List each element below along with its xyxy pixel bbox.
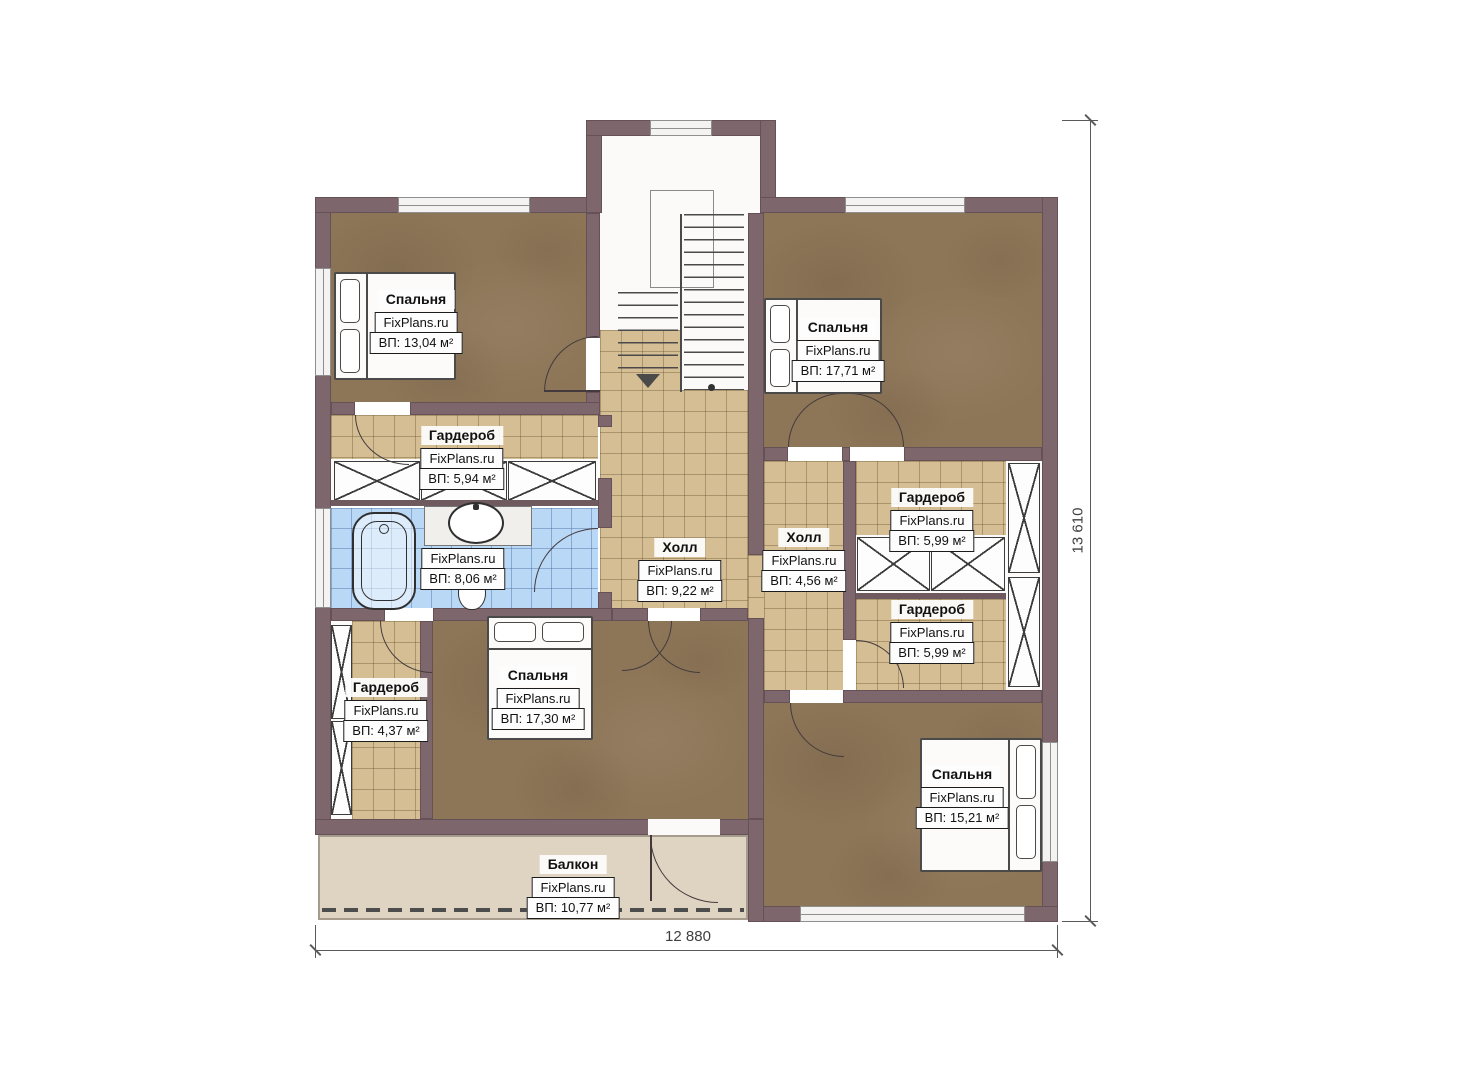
pillow-icon — [1016, 805, 1036, 859]
room-label-wardrobe-left: Гардероб FixPlans.ru ВП: 5,94 м² — [419, 426, 504, 490]
wall — [748, 213, 764, 555]
pillow-icon — [542, 622, 584, 642]
room-label-wardrobe-right-upper: Гардероб FixPlans.ru ВП: 5,99 м² — [889, 488, 974, 552]
room-area: ВП: 4,56 м² — [761, 570, 846, 592]
pillow-icon — [340, 279, 360, 323]
window — [650, 120, 712, 136]
room-name: Холл — [654, 538, 705, 557]
door-arc-icon — [534, 528, 598, 592]
room-name: Спальня — [800, 318, 876, 337]
room-name: Гардероб — [891, 488, 973, 507]
wall — [748, 618, 764, 819]
watermark: FixPlans.ru — [496, 688, 579, 710]
watermark: FixPlans.ru — [421, 548, 504, 570]
stairs-icon — [684, 214, 744, 390]
room-label-hall-right: Холл FixPlans.ru ВП: 4,56 м² — [761, 528, 846, 592]
bathtub-drain — [379, 524, 389, 534]
room-label-bedroom-bottom-right: Спальня FixPlans.ru ВП: 15,21 м² — [916, 765, 1009, 829]
wall — [856, 593, 1006, 599]
watermark: FixPlans.ru — [420, 448, 503, 470]
wall — [700, 608, 748, 621]
pillow-icon — [494, 622, 536, 642]
wall — [748, 819, 764, 922]
window — [315, 268, 331, 376]
room-area: ВП: 17,30 м² — [492, 708, 585, 730]
room-area: ВП: 17,71 м² — [792, 360, 885, 382]
window — [1042, 742, 1058, 862]
room-name: Холл — [778, 528, 829, 547]
wall — [764, 447, 788, 461]
dimension-extension — [1057, 925, 1058, 958]
dimension-width-label: 12 880 — [640, 928, 736, 945]
wall — [586, 213, 600, 338]
watermark: FixPlans.ru — [344, 700, 427, 722]
watermark: FixPlans.ru — [374, 312, 457, 334]
wardrobe-unit-icon — [1008, 463, 1040, 573]
pillow-icon — [340, 329, 360, 373]
floor-plan: Спальня FixPlans.ru ВП: 13,04 м² Спальня… — [0, 0, 1473, 1080]
wardrobe-unit-icon — [508, 461, 596, 501]
stairs-divider — [680, 214, 682, 392]
room-area: ВП: 10,77 м² — [527, 897, 620, 919]
stairs-newel — [708, 384, 715, 391]
window — [315, 508, 331, 608]
stairs-arrow-icon — [636, 374, 660, 388]
room-area: ВП: 9,22 м² — [637, 580, 722, 602]
door-arc-icon — [790, 703, 844, 757]
watermark: FixPlans.ru — [890, 622, 973, 644]
room-area: ВП: 5,94 м² — [419, 468, 504, 490]
watermark: FixPlans.ru — [796, 340, 879, 362]
watermark: FixPlans.ru — [531, 877, 614, 899]
watermark: FixPlans.ru — [638, 560, 721, 582]
room-label-wardrobe-right-lower: Гардероб FixPlans.ru ВП: 5,99 м² — [889, 600, 974, 664]
room-label-hall-center: Холл FixPlans.ru ВП: 9,22 м² — [637, 538, 722, 602]
watermark: FixPlans.ru — [890, 510, 973, 532]
dimension-extension — [315, 925, 316, 958]
room-label-wardrobe-bottom-left: Гардероб FixPlans.ru ВП: 4,37 м² — [343, 678, 428, 742]
room-name: Гардероб — [891, 600, 973, 619]
room-name: Гардероб — [421, 426, 503, 445]
door-arc-icon — [850, 393, 904, 447]
wardrobe-unit-icon — [334, 461, 420, 501]
wall — [843, 690, 1042, 703]
wall — [612, 608, 648, 621]
room-name: Спальня — [924, 765, 1000, 784]
wall — [410, 402, 600, 415]
wall — [842, 447, 850, 461]
window — [845, 197, 965, 213]
window — [398, 197, 530, 213]
pillow-icon — [770, 305, 790, 343]
door-arc-icon — [355, 415, 409, 465]
door-leaf — [544, 390, 600, 392]
balcony-door-opening — [648, 819, 720, 835]
room-area: ВП: 13,04 м² — [370, 332, 463, 354]
door-arc-icon — [544, 336, 598, 392]
tap-icon — [473, 504, 479, 510]
room-label-bedroom-top-left: Спальня FixPlans.ru ВП: 13,04 м² — [370, 290, 463, 354]
dimension-line-bottom — [315, 950, 1058, 951]
door-arc-icon — [650, 835, 718, 903]
room-label-bedroom-top-right: Спальня FixPlans.ru ВП: 17,71 м² — [792, 318, 885, 382]
room-name: Спальня — [378, 290, 454, 309]
bed-line — [366, 274, 368, 378]
room-label-bedroom-bottom-center: Спальня FixPlans.ru ВП: 17,30 м² — [492, 666, 585, 730]
room-name: Спальня — [500, 666, 576, 685]
room-area: ВП: 15,21 м² — [916, 807, 1009, 829]
door-leaf — [650, 835, 652, 901]
stairs-icon — [618, 292, 678, 376]
window — [800, 906, 1025, 922]
door-arc-icon — [380, 621, 432, 673]
door-arc-icon — [788, 393, 842, 447]
wall — [764, 690, 790, 703]
pillow-icon — [1016, 745, 1036, 799]
bed-line — [489, 648, 591, 650]
room-area: ВП: 5,99 м² — [889, 530, 974, 552]
room-area: ВП: 8,06 м² — [420, 568, 505, 590]
room-name: Балкон — [540, 855, 607, 874]
dimension-line-right — [1090, 120, 1091, 922]
wall — [331, 402, 355, 415]
dimension-height-label: 13 610 — [1070, 499, 1087, 563]
room-label-balcony: Балкон FixPlans.ru ВП: 10,77 м² — [527, 855, 620, 919]
room-area: ВП: 5,99 м² — [889, 642, 974, 664]
wall — [598, 415, 612, 427]
wall — [598, 478, 612, 528]
pillow-icon — [770, 349, 790, 387]
room-name: Гардероб — [345, 678, 427, 697]
bathtub-icon — [352, 512, 416, 610]
room-area: ВП: 4,37 м² — [343, 720, 428, 742]
watermark: FixPlans.ru — [762, 550, 845, 572]
door-arc-icon — [622, 621, 672, 671]
wall — [904, 447, 1042, 461]
wardrobe-unit-icon — [1008, 577, 1040, 687]
watermark: FixPlans.ru — [920, 787, 1003, 809]
